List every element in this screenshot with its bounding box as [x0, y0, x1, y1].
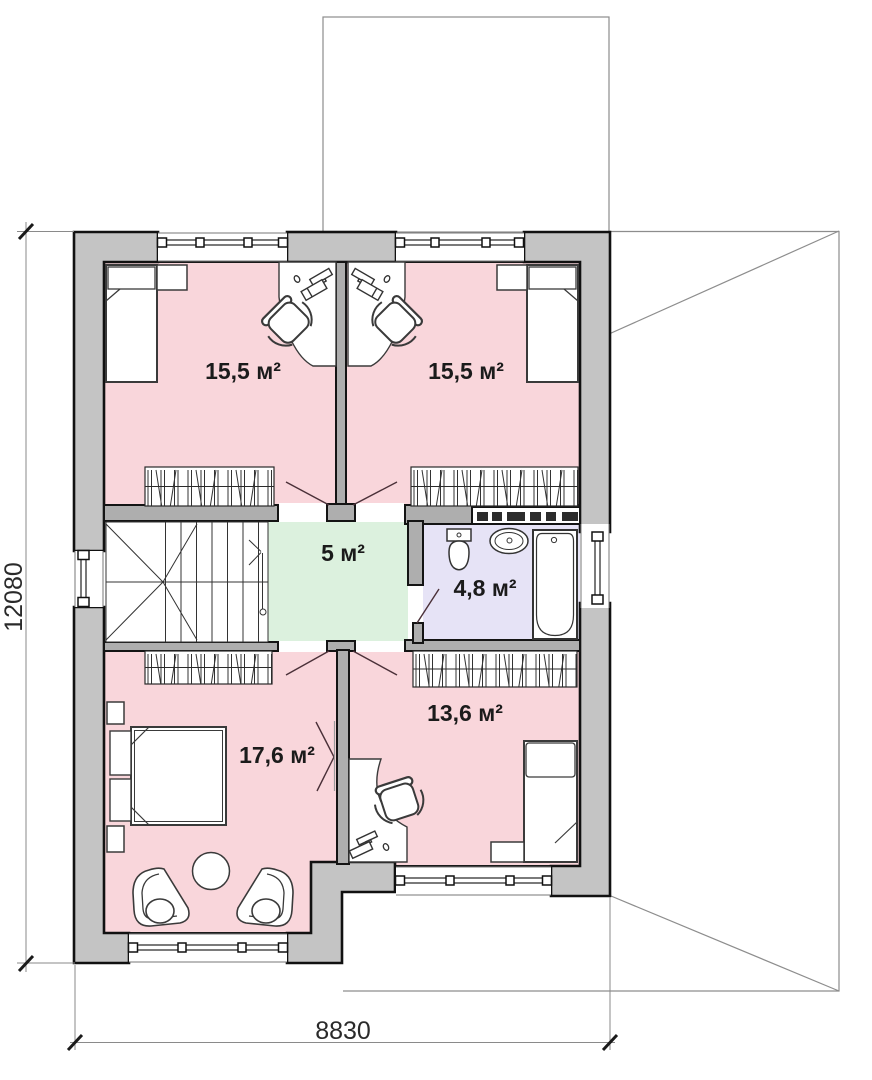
svg-text:5 м²: 5 м² — [321, 540, 365, 566]
svg-text:12080: 12080 — [0, 562, 28, 632]
svg-text:15,5 м²: 15,5 м² — [428, 358, 504, 384]
svg-text:13,6 м²: 13,6 м² — [427, 700, 503, 726]
svg-text:17,6 м²: 17,6 м² — [239, 742, 315, 768]
svg-text:8830: 8830 — [315, 1017, 371, 1045]
svg-text:4,8 м²: 4,8 м² — [453, 575, 516, 601]
svg-text:15,5 м²: 15,5 м² — [205, 358, 281, 384]
